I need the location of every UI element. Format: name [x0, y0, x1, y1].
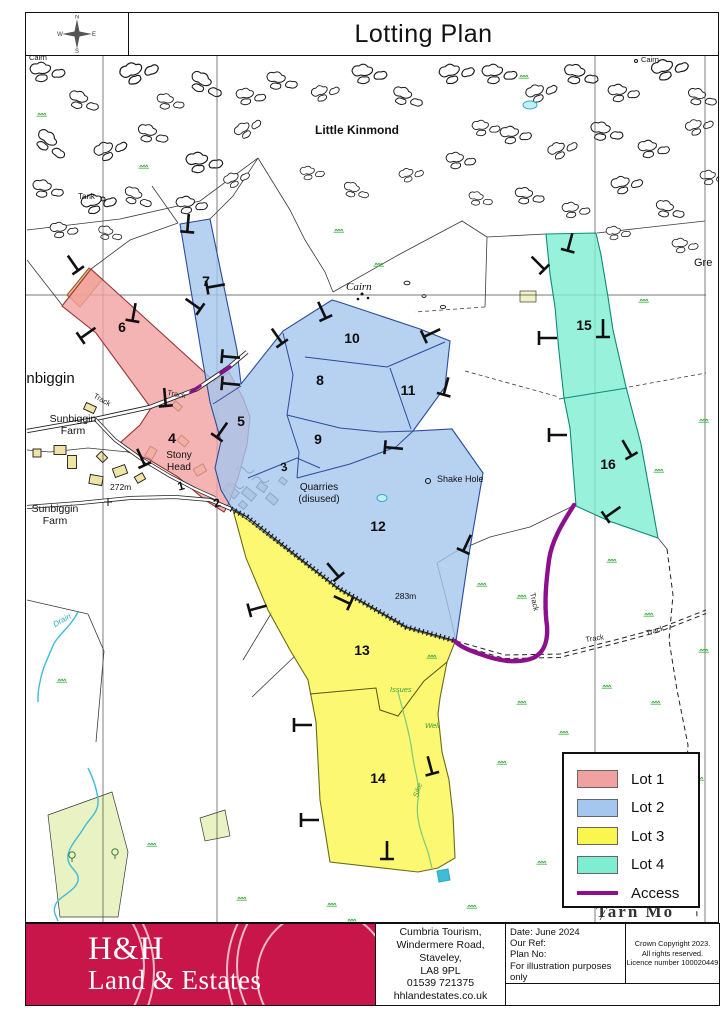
- page-title: Lotting Plan: [354, 20, 492, 49]
- label-tank: Tank: [78, 193, 95, 202]
- label-little-kinmond: Little Kinmond: [315, 124, 399, 137]
- label-gre: Gre: [694, 257, 712, 269]
- date-text: Date: June 2024: [510, 927, 623, 938]
- address-line: Windermere Road,: [376, 939, 505, 952]
- legend-row-lot2: Lot 2: [577, 794, 698, 823]
- svg-text:E: E: [92, 32, 96, 38]
- parcel-number: 10: [344, 330, 360, 346]
- label-cairn-topright: Cairn: [641, 56, 659, 64]
- lot1-label: Lot 1: [631, 771, 664, 788]
- legend-row-lot4: Lot 4: [577, 851, 698, 880]
- copyright-box: Crown Copyright 2023. All rights reserve…: [626, 924, 719, 983]
- parcel-number: 9: [314, 431, 322, 447]
- lot4-polygon: [546, 233, 658, 538]
- lot4-label: Lot 4: [631, 856, 664, 873]
- legend-row-access: Access: [577, 879, 698, 908]
- our-ref-text: Our Ref:: [510, 938, 623, 949]
- label-sunbiggin: Sunbiggin: [8, 371, 75, 388]
- lot2-polygon: [180, 219, 483, 641]
- plan-reference-box: Date: June 2024 Our Ref: Plan No: For il…: [506, 924, 626, 983]
- title-bar: N E S W Lotting Plan: [25, 12, 719, 56]
- address-line: LA8 9PL: [376, 965, 505, 978]
- legend-row-lot1: Lot 1: [577, 765, 698, 794]
- access-line-swatch: [577, 891, 618, 895]
- parcel-number: 8: [316, 372, 324, 388]
- parcel-number: 6: [118, 319, 126, 335]
- parcel-number: 15: [576, 317, 592, 333]
- parcel-number: 14: [370, 770, 386, 786]
- footer: H&H Land & Estates Cumbria Tourism, Wind…: [25, 923, 720, 1006]
- address-line: Staveley,: [376, 952, 505, 965]
- compass-rose-icon: N E S W: [26, 13, 129, 55]
- disclaimer-text: only: [510, 972, 623, 983]
- rocky-outcrops: [30, 55, 725, 253]
- plan-no-text: Plan No:: [510, 949, 623, 960]
- label-spot-272: 272m: [110, 483, 131, 492]
- company-logo: H&H Land & Estates: [26, 924, 376, 1005]
- label-sunbiggin-farm-1: SunbigginFarm: [40, 413, 106, 437]
- label-sunbiggin-farm-2: SunbigginFarm: [22, 503, 88, 527]
- title-cell: Lotting Plan: [129, 13, 718, 55]
- copyright-line: Crown Copyright 2023.: [626, 939, 719, 949]
- parcel-number: 12: [370, 518, 386, 534]
- label-stony-head: StonyHead: [150, 450, 208, 473]
- address-line: 01539 721375: [376, 977, 505, 990]
- footer-empty-cell: [506, 984, 719, 1005]
- label-cairn-gothic: Cairn: [346, 281, 372, 293]
- parcel-number: 11: [401, 382, 416, 398]
- copyright-line: All rights reserved.: [626, 949, 719, 959]
- website-text: hhlandestates.co.uk: [376, 990, 505, 1003]
- lot4-swatch: [577, 856, 618, 874]
- parcel-number: 13: [354, 642, 370, 658]
- label-spot-283: 283m: [395, 592, 416, 601]
- lot2-swatch: [577, 799, 618, 817]
- label-shake-hole: Shake Hole: [437, 475, 484, 485]
- parcel-number: 7: [202, 273, 210, 289]
- lot1-swatch: [577, 770, 618, 788]
- lotting-plan-page: Little Kinmond Cairn Cairn Cairn Tank Su…: [0, 0, 725, 1024]
- svg-text:S: S: [75, 49, 79, 53]
- copyright-line: Licence number 100020449: [626, 958, 719, 968]
- svg-text:W: W: [57, 32, 63, 38]
- label-quarries: Quarries(disused): [286, 482, 352, 505]
- svg-text:N: N: [75, 15, 79, 21]
- label-issues: Issues: [390, 686, 412, 694]
- parcel-number: 4: [168, 430, 176, 446]
- address-line: Cumbria Tourism,: [376, 926, 505, 939]
- address-box: Cumbria Tourism, Windermere Road, Stavel…: [376, 924, 506, 1005]
- label-well: Well: [425, 722, 439, 730]
- parcel-number: 16: [600, 456, 616, 472]
- legend-row-lot3: Lot 3: [577, 822, 698, 851]
- disclaimer-text: For illustration purposes: [510, 961, 623, 972]
- lot3-swatch: [577, 827, 618, 845]
- lot2-label: Lot 2: [631, 799, 664, 816]
- lot3-label: Lot 3: [631, 828, 664, 845]
- legend: Lot 1 Lot 2 Lot 3 Lot 4 Access: [562, 752, 700, 908]
- cairn-circle: [635, 60, 638, 63]
- parcel-number: 5: [237, 413, 245, 429]
- access-label: Access: [631, 885, 679, 902]
- reference-section: Date: June 2024 Our Ref: Plan No: For il…: [506, 924, 719, 1005]
